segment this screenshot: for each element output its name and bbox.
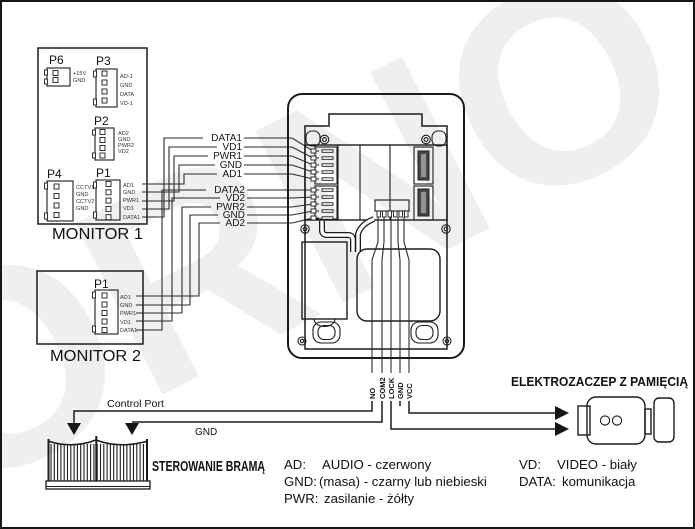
- arrow-right-icon: [555, 422, 569, 436]
- terminal-label: LOCK: [387, 377, 396, 399]
- pin-label: PWR1: [120, 311, 136, 317]
- pin-label: AD1: [120, 295, 131, 301]
- arrow-right-icon: [555, 406, 569, 420]
- pin-label: DATA1: [120, 328, 137, 334]
- legend-desc: komunikacja: [562, 474, 636, 489]
- pin-label: GND: [120, 83, 132, 89]
- gnd-line-label: GND: [195, 427, 217, 438]
- connector-name: P1: [94, 277, 109, 291]
- bus1-label: AD1: [223, 169, 243, 180]
- legend-desc: (masa) - czarny lub niebieski: [319, 474, 487, 489]
- pin-label: VD-1: [120, 101, 133, 107]
- pin-label: GND: [120, 303, 132, 309]
- control-port-label: Control Port: [107, 399, 164, 410]
- legend: AD: AUDIO - czerwony GND: (masa) - czarn…: [284, 457, 637, 506]
- connector-name: P1: [96, 166, 111, 180]
- terminal-label: NO: [368, 388, 377, 399]
- terminal-label: VCC: [405, 383, 414, 399]
- pin-label: GND: [76, 206, 88, 212]
- pin-label: GND: [123, 190, 135, 196]
- terminal-label: COM2: [378, 377, 387, 399]
- pin-label: CCTV1: [76, 185, 94, 191]
- pin-label: PWR1: [123, 198, 139, 204]
- connector-name: P2: [94, 114, 109, 128]
- terminal-label: GND: [396, 382, 405, 399]
- pin-label: CCTV2: [76, 199, 94, 205]
- electric-strike-icon: [578, 397, 674, 444]
- legend-desc: VIDEO - biały: [557, 457, 637, 472]
- pin-label: AD1: [123, 183, 134, 189]
- pin-label: VD1: [123, 206, 134, 212]
- connector-name: P6: [49, 53, 64, 67]
- connector-p3: P3 AD-1 GND DATA VD-1: [94, 54, 135, 107]
- connector-p6: P6 +15V GND: [45, 53, 87, 86]
- wiring-diagram: ORNO MONITOR 1 P6 +15V GND P3 AD-1 GND D…: [0, 0, 695, 529]
- legend-desc: zasilanie - żółty: [324, 491, 415, 506]
- legend-term: GND:: [284, 474, 317, 489]
- legend-term: AD:: [284, 457, 306, 472]
- legend-term: PWR:: [284, 491, 318, 506]
- pin-label: +15V: [73, 71, 86, 77]
- bus2-label: AD2: [226, 218, 246, 229]
- station-connector-upper: [311, 147, 337, 184]
- connector-name: P3: [96, 54, 111, 68]
- legend-term: VD:: [519, 457, 541, 472]
- pin-label: AD-1: [120, 74, 133, 80]
- connector-name: P4: [47, 167, 62, 181]
- monitor1-title: MONITOR 1: [52, 226, 143, 243]
- pin-label: GND: [76, 192, 88, 198]
- strike-title: ELEKTROZACZEP Z PAMIĘCIĄ: [511, 375, 688, 389]
- legend-term: DATA:: [519, 474, 556, 489]
- legend-desc: AUDIO - czerwony: [322, 457, 432, 472]
- pin-label: VD1: [120, 320, 131, 326]
- diagram-canvas: ORNO MONITOR 1 P6 +15V GND P3 AD-1 GND D…: [2, 2, 693, 527]
- gate-title: STEROWANIE BRAMĄ: [152, 459, 265, 475]
- monitor2-title: MONITOR 2: [50, 348, 141, 365]
- pin-label: VD2: [118, 149, 129, 155]
- pin-label: GND: [73, 78, 85, 84]
- pin-label: DATA: [120, 92, 134, 98]
- pin-label: DATA1: [123, 215, 140, 221]
